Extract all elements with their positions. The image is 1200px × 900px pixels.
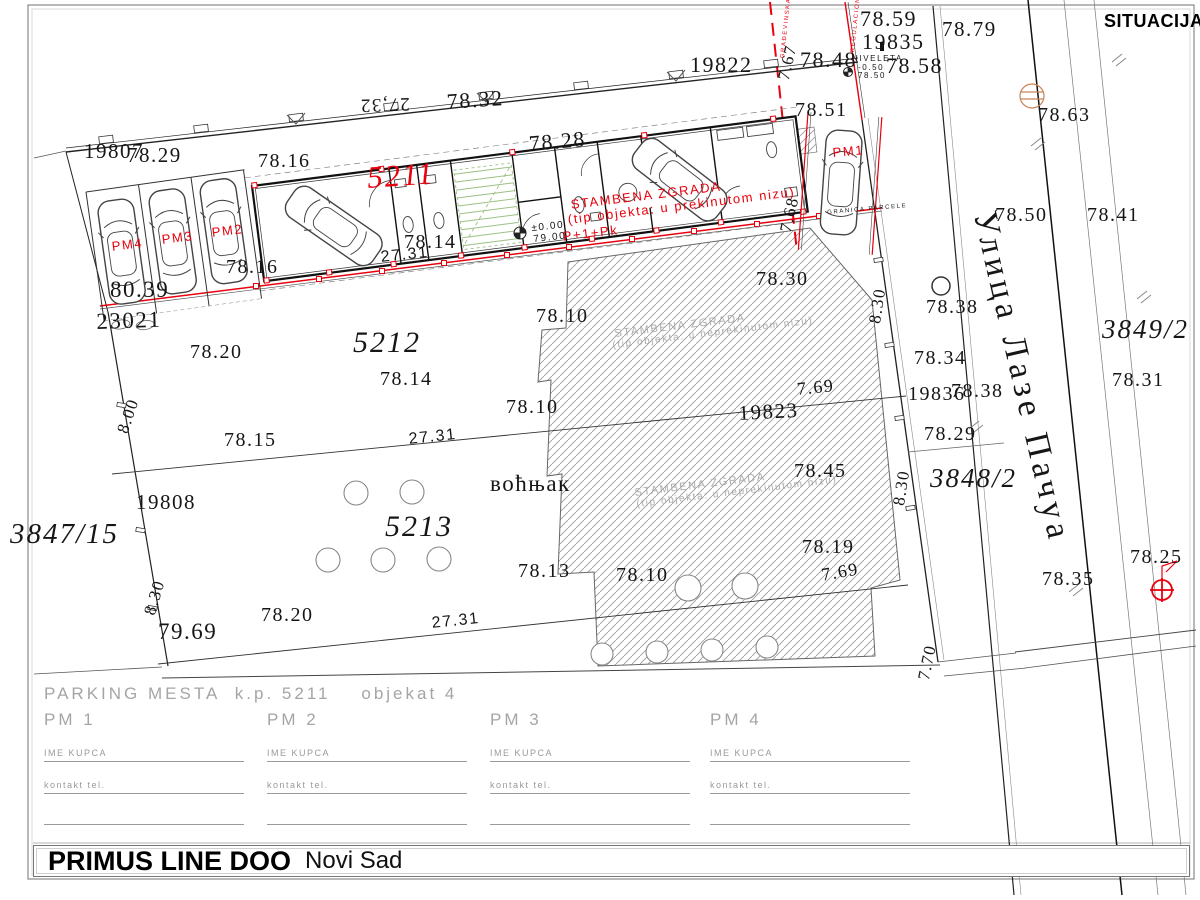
plan-label: 8.30 [141,578,168,617]
slot-label: PM 2 [267,710,467,730]
parking-column-pm4: PM 4 IME KUPCA kontakt tel. [710,710,910,825]
extra-field [490,810,690,825]
plan-label: 27.31 [408,427,457,448]
plan-label: 78.10 [616,565,669,585]
parking-column-pm2: PM 2 IME KUPCA kontakt tel. [267,710,467,825]
contact-phone-field: kontakt tel. [710,780,910,794]
plan-label: 19823 [738,400,799,424]
plan-label: 78.25 [1130,547,1183,567]
plan-label: NIVELETA [852,55,903,63]
plan-label: 78.32 [446,87,504,113]
plan-label: воћњак [490,472,571,495]
plan-label: 78.50 [858,72,886,80]
plan-label: 19808 [136,492,196,513]
plan-label: 78.48 [800,49,857,71]
plan-label: 5211 [366,157,436,193]
buyer-name-field: IME KUPCA [267,748,467,762]
plan-label: 80.39 [110,278,169,301]
contact-phone-field: kontakt tel. [490,780,690,794]
plan-label: 3849/2 [1102,316,1189,343]
plan-label: 79.69 [158,620,217,643]
plan-label: 78.31 [1112,370,1165,390]
plan-label: 8.30 [866,287,888,325]
extra-field [267,810,467,825]
plan-label: PM4 [111,236,144,253]
plan-label: 23021 [96,308,162,333]
slot-label: PM 3 [490,710,690,730]
plan-label: 27.31 [380,245,429,266]
plan-label: 78.20 [190,342,243,362]
plan-label: Улица Лазе Пачуа [967,208,1076,546]
plan-label: 78.29 [924,424,977,444]
plan-label: 78.16 [226,257,279,277]
site-plan-page: 78.591983578.79198227.6778.4878.58NIVELE… [0,0,1200,900]
extra-field [44,810,244,825]
drawing-title: SITUACIJA [1104,11,1200,32]
contact-phone-field: kontakt tel. [267,780,467,794]
plan-label: 78.38 [926,297,979,317]
plan-label: 78.13 [518,561,571,581]
plan-label: 78.35 [1042,569,1095,589]
plan-label: 8.30 [890,469,912,507]
plan-label: 5213 [385,512,453,542]
plan-label: 78.59 [860,8,917,30]
plan-label: 3847/15 [10,520,119,549]
plan-label: 78.79 [942,19,997,40]
plan-label: 7.68 [777,195,802,234]
plan-label: 78.19 [802,537,855,557]
plan-label: PM1 [832,143,865,159]
slot-label: PM 4 [710,710,910,730]
plan-label: 27,32 [359,94,410,115]
plan-label: 19822 [690,54,753,76]
contact-phone-field: kontakt tel. [44,780,244,794]
extra-field [710,810,910,825]
plan-label: 7.69 [820,559,860,583]
slot-label: PM 1 [44,710,244,730]
plan-label: 78.41 [1087,205,1140,225]
plan-label: 7.69 [796,376,835,398]
company-name: PRIMUS LINE DOO [48,846,291,877]
plan-label: 78.16 [258,151,311,171]
plan-label: 7.67 [775,43,800,82]
company-city: Novi Sad [305,847,402,875]
plan-label: 78.63 [1038,105,1091,125]
plan-label: 27.31 [431,611,480,632]
title-block: PRIMUS LINE DOO Novi Sad [33,845,1190,877]
parking-table: PARKING MESTA k.p. 5211 objekat 4 PM 1 I… [44,684,964,704]
plan-label: 78.14 [380,369,433,389]
plan-label: 3848/2 [930,465,1017,492]
plan-label: 78.29 [127,145,182,166]
plan-label: 78.20 [261,605,314,625]
plan-label: 8.00 [114,396,142,435]
plan-label: GRANICA PARCELE [827,203,907,216]
buyer-name-field: IME KUPCA [710,748,910,762]
plan-label: 78.30 [756,269,809,289]
buyer-name-field: IME KUPCA [490,748,690,762]
plan-label: 78.51 [795,100,848,120]
plan-label: 78.10 [536,306,589,326]
parking-column-pm1: PM 1 IME KUPCA kontakt tel. [44,710,244,825]
plan-label: 5212 [353,328,421,358]
parking-column-pm3: PM 3 IME KUPCA kontakt tel. [490,710,690,825]
plan-label: 78.38 [951,381,1004,401]
plan-label: 19835 [862,31,925,53]
plan-label: 78.15 [224,430,277,450]
plan-label: 7.70 [915,643,939,682]
plan-label: 78.34 [914,348,967,368]
plan-label: PM3 [161,229,194,246]
plan-label: 78.10 [506,397,559,417]
plan-label: PM2 [211,222,244,239]
plan-label: 78.28 [528,128,587,155]
parking-table-title: PARKING MESTA k.p. 5211 objekat 4 [44,684,964,704]
buyer-name-field: IME KUPCA [44,748,244,762]
